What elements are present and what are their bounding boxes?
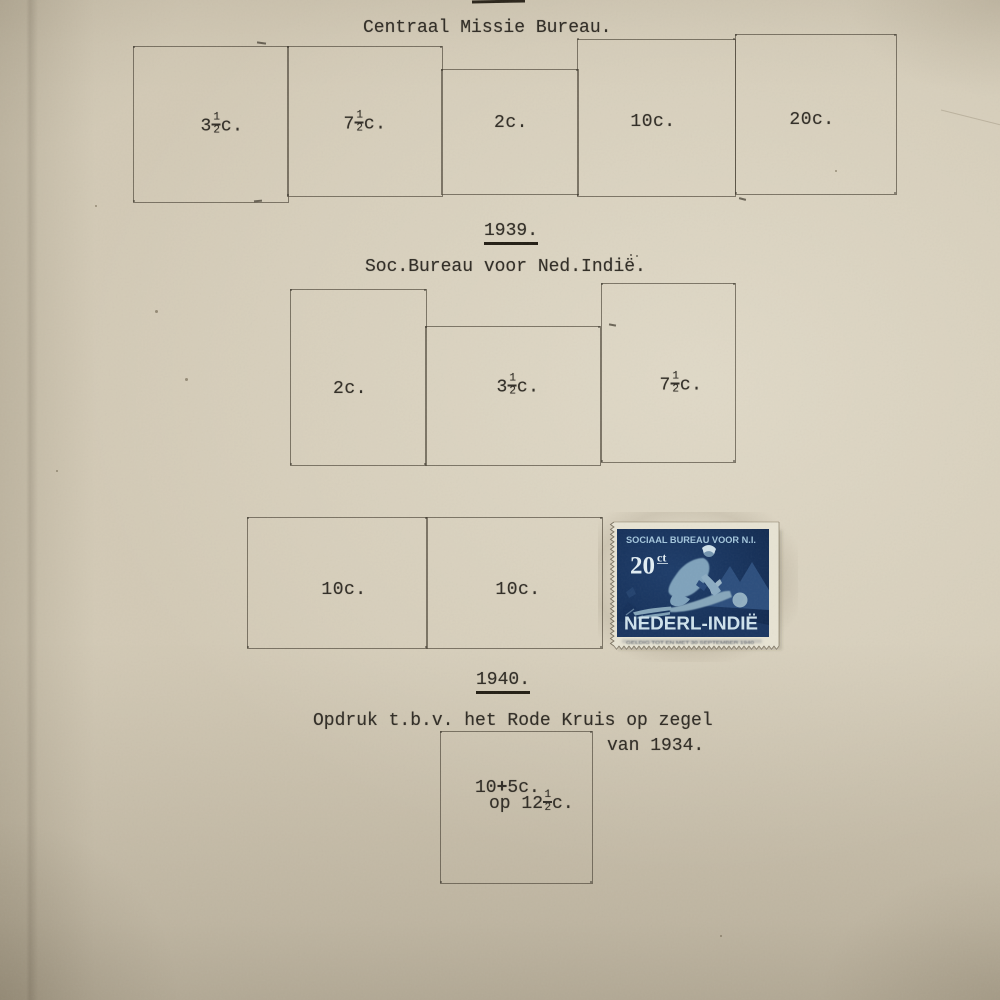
svg-text:SOCIAAL BUREAU VOOR N.I.: SOCIAAL BUREAU VOOR N.I. [626,535,756,545]
svg-text:ct: ct [657,551,666,565]
svg-text:GELDIG TOT EN MET 30 SEPTEMBER: GELDIG TOT EN MET 30 SEPTEMBER 1940 [626,640,755,645]
svg-text:NEDERL-INDIË: NEDERL-INDIË [624,613,758,634]
svg-text:20: 20 [630,553,655,580]
